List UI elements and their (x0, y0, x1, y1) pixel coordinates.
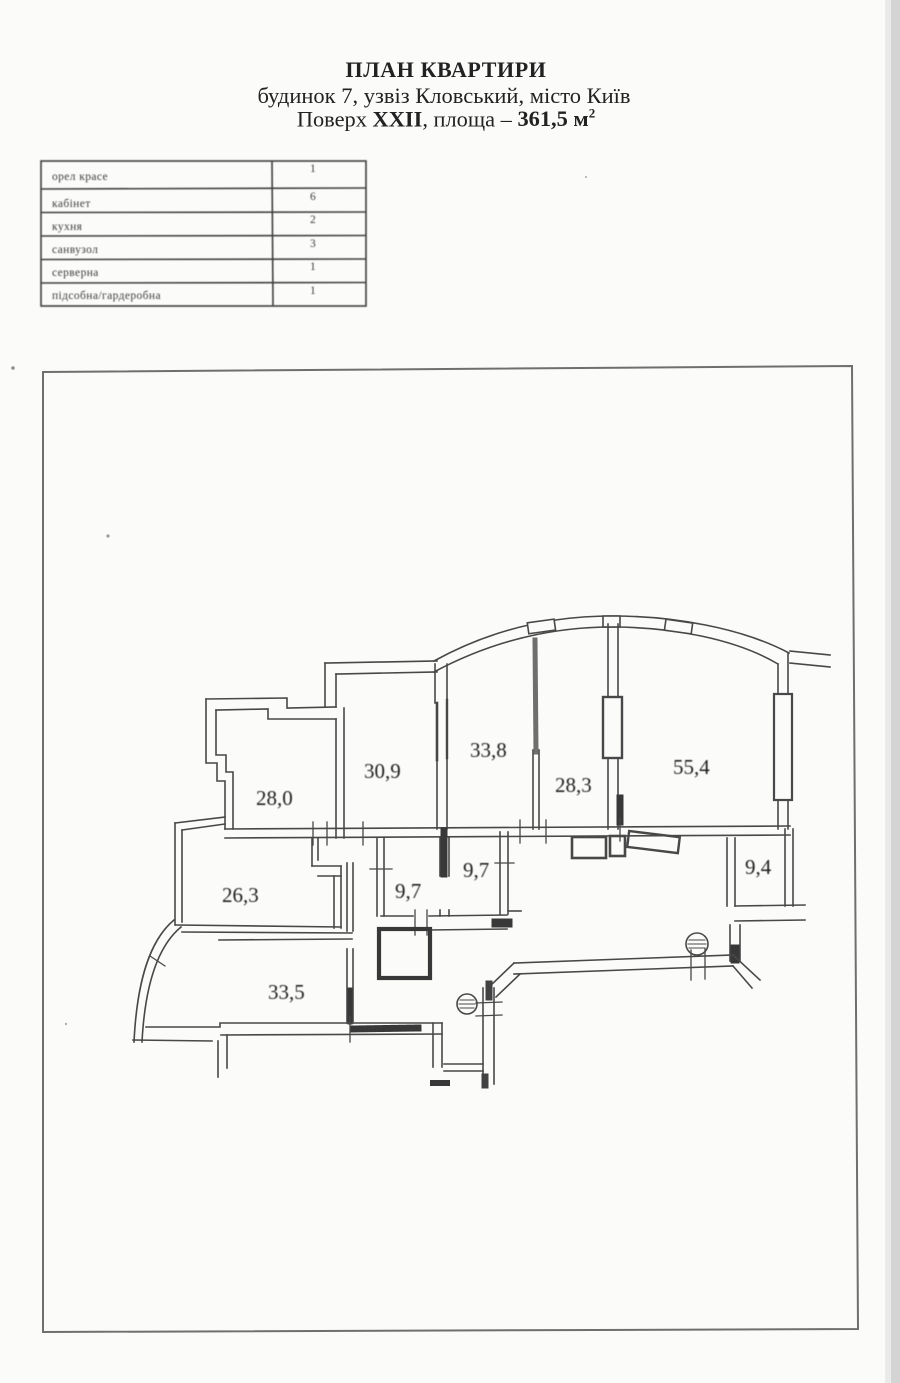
svg-text:55,4: 55,4 (673, 755, 710, 779)
svg-text:30,9: 30,9 (364, 759, 401, 783)
svg-text:6: 6 (310, 191, 316, 203)
svg-text:9,4: 9,4 (745, 855, 772, 879)
svg-text:33,8: 33,8 (470, 738, 507, 762)
svg-text:9,7: 9,7 (463, 858, 489, 882)
svg-text:1: 1 (310, 285, 316, 297)
svg-text:33,5: 33,5 (268, 980, 305, 1004)
svg-text:кухня: кухня (52, 221, 83, 233)
svg-text:1: 1 (310, 163, 316, 175)
svg-text:9,7: 9,7 (395, 879, 421, 903)
svg-text:26,3: 26,3 (222, 883, 259, 907)
svg-text:28,3: 28,3 (555, 773, 592, 797)
svg-text:орел красе: орел красе (52, 171, 108, 183)
svg-text:28,0: 28,0 (256, 786, 293, 810)
svg-text:кабінет: кабінет (52, 198, 91, 210)
svg-text:санвузол: санвузол (52, 244, 98, 256)
svg-text:серверна: серверна (52, 267, 99, 279)
svg-text:підсобна/гардеробна: підсобна/гардеробна (52, 290, 161, 302)
svg-text:2: 2 (310, 214, 316, 226)
svg-text:1: 1 (310, 261, 316, 273)
svg-text:3: 3 (310, 238, 316, 250)
